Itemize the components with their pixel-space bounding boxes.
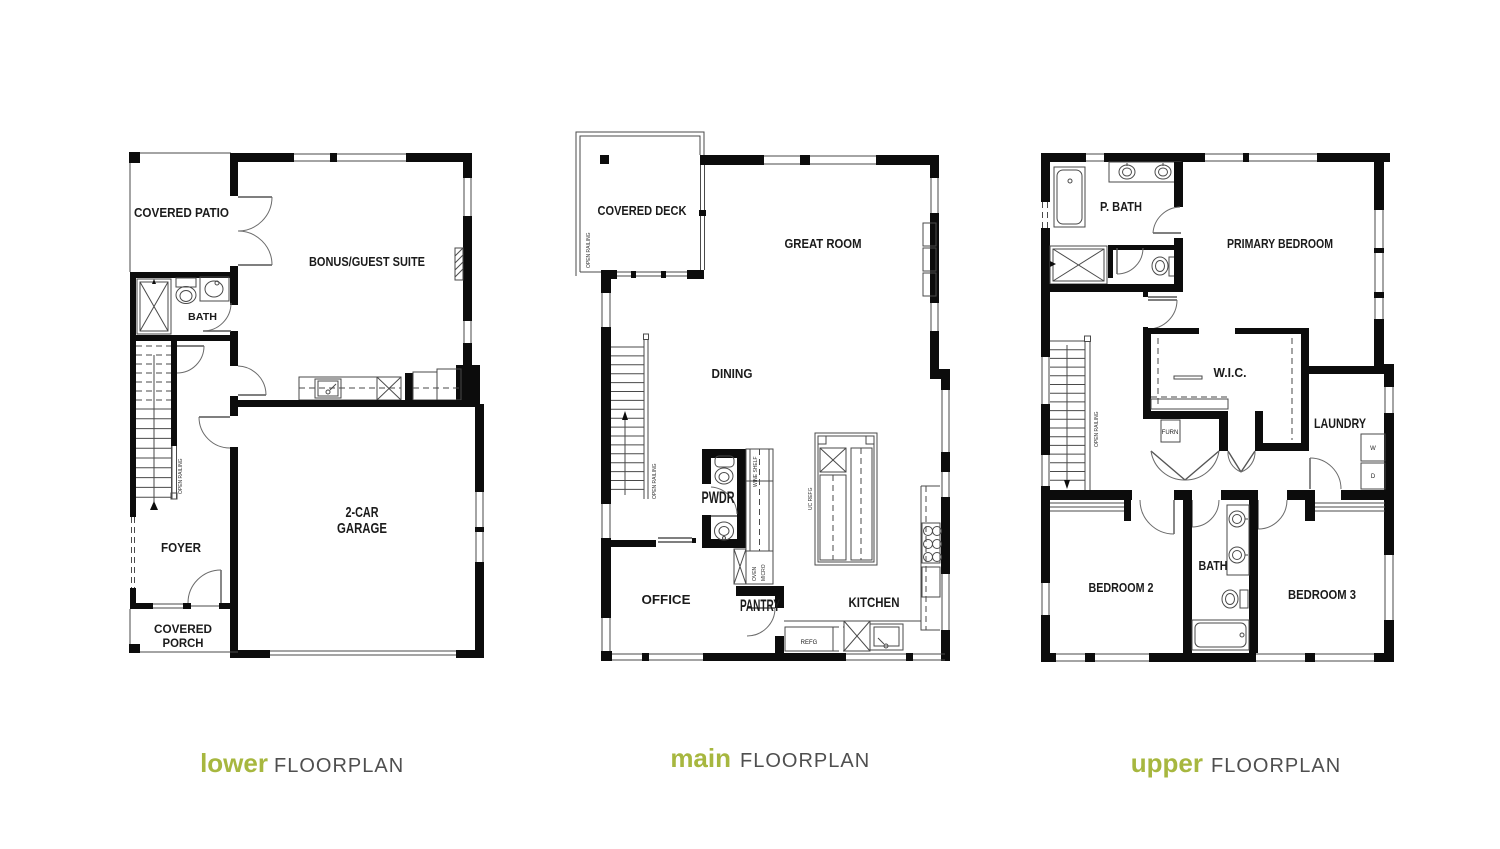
svg-text:main: main [670,743,731,773]
svg-text:FOYER: FOYER [161,540,202,555]
svg-text:OPEN RAILING: OPEN RAILING [178,458,184,494]
svg-text:REFG: REFG [801,640,818,646]
svg-text:OPEN RAILING: OPEN RAILING [652,463,658,499]
svg-text:PANTRY: PANTRY [740,597,780,615]
svg-text:upper: upper [1131,748,1203,778]
svg-text:FLOORPLAN: FLOORPLAN [740,750,870,772]
svg-text:UC REFG: UC REFG [808,487,814,510]
svg-text:P. BATH: P. BATH [1100,199,1142,214]
svg-text:BATH: BATH [1199,558,1228,573]
svg-text:BONUS/GUEST SUITE: BONUS/GUEST SUITE [309,255,425,269]
svg-text:PRIMARY BEDROOM: PRIMARY BEDROOM [1227,236,1333,251]
svg-text:DINING: DINING [712,366,753,381]
svg-text:WINE SHELF: WINE SHELF [753,456,759,487]
svg-text:OFFICE: OFFICE [642,592,691,607]
svg-text:COVERED DECK: COVERED DECK [598,203,688,218]
svg-text:COVERED: COVERED [154,624,212,636]
svg-text:OPEN RAILING: OPEN RAILING [586,232,592,268]
svg-text:FURN: FURN [1162,430,1179,436]
svg-text:GREAT ROOM: GREAT ROOM [785,236,862,251]
svg-text:COVERED PATIO: COVERED PATIO [134,206,229,220]
svg-text:2-CAR: 2-CAR [346,504,379,521]
svg-text:FLOORPLAN: FLOORPLAN [274,755,404,777]
svg-text:BATH: BATH [188,311,217,323]
svg-text:OVEN: OVEN [752,566,758,581]
svg-text:PORCH: PORCH [163,638,204,650]
svg-text:LAUNDRY: LAUNDRY [1314,415,1367,431]
svg-text:FLOORPLAN: FLOORPLAN [1211,755,1341,777]
svg-text:W: W [1370,446,1376,452]
svg-text:BEDROOM 3: BEDROOM 3 [1288,587,1356,602]
svg-text:OPEN RAILING: OPEN RAILING [1094,411,1100,447]
svg-text:MICRO: MICRO [761,564,767,581]
svg-text:lower: lower [200,748,268,778]
svg-text:PWDR: PWDR [702,489,735,507]
svg-text:D: D [1371,474,1376,480]
svg-text:GARAGE: GARAGE [337,520,387,537]
svg-text:KITCHEN: KITCHEN [849,594,900,610]
svg-text:BEDROOM 2: BEDROOM 2 [1089,580,1154,595]
svg-text:W.I.C.: W.I.C. [1214,365,1247,380]
